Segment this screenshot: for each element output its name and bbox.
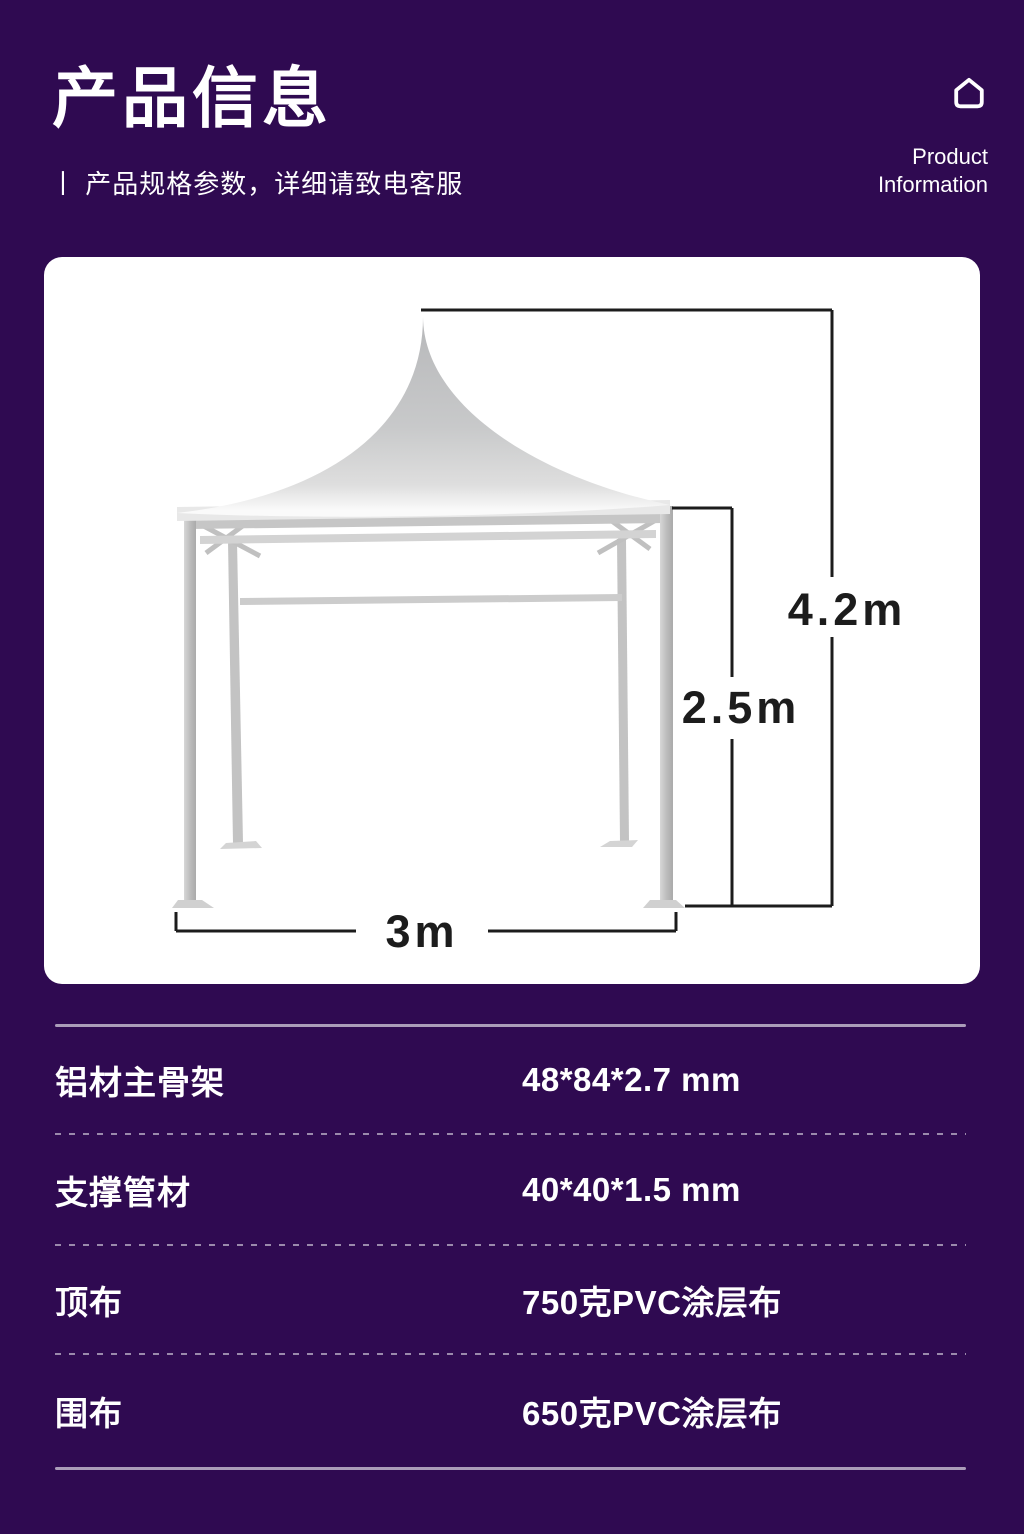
page-subtitle: 丨 产品规格参数，详细请致电客服 bbox=[50, 164, 463, 201]
dim-total-height-label: 4.2m bbox=[788, 584, 907, 635]
tent-rear-left-foot bbox=[220, 841, 262, 849]
home-icon bbox=[950, 76, 988, 112]
spec-value: 650克PVC涂层布 bbox=[522, 1387, 782, 1435]
spec-label: 顶布 bbox=[55, 1276, 522, 1324]
tent-front-right-leg bbox=[660, 506, 673, 900]
spec-table: 铝材主骨架 48*84*2.7 mm 支撑管材 40*40*1.5 mm 顶布 … bbox=[55, 1024, 966, 1470]
product-info-page: 产品信息 丨 产品规格参数，详细请致电客服 Product Informatio… bbox=[0, 0, 1024, 1534]
diagram-card: 4.2m 2.5m 3m bbox=[44, 257, 980, 984]
spec-value: 750克PVC涂层布 bbox=[522, 1276, 782, 1324]
spec-value: 48*84*2.7 mm bbox=[522, 1061, 741, 1099]
tent-roof bbox=[177, 317, 670, 517]
tent-front-beam-lower bbox=[200, 530, 656, 544]
spec-label: 铝材主骨架 bbox=[55, 1056, 522, 1104]
tent-rear-left-leg bbox=[228, 541, 243, 844]
spec-row-support-tube: 支撑管材 40*40*1.5 mm bbox=[55, 1135, 966, 1244]
tent-rear-right-foot bbox=[600, 840, 638, 847]
tent-rear-right-leg bbox=[617, 539, 629, 842]
corner-line-2: Information bbox=[878, 171, 988, 199]
corner-line-1: Product bbox=[878, 143, 988, 171]
tent-dimension-diagram: 4.2m 2.5m 3m bbox=[44, 257, 980, 984]
dimension-lines bbox=[176, 310, 832, 931]
spec-row-frame: 铝材主骨架 48*84*2.7 mm bbox=[55, 1027, 966, 1133]
spec-value: 40*40*1.5 mm bbox=[522, 1171, 741, 1209]
header-corner-text: Product Information bbox=[878, 143, 988, 199]
spec-row-side-fabric: 围布 650克PVC涂层布 bbox=[55, 1355, 966, 1467]
tent-front-left-foot bbox=[172, 900, 214, 908]
tent-rear-beam bbox=[240, 594, 622, 605]
dim-base-width-label: 3m bbox=[385, 906, 458, 957]
table-bottom-rule bbox=[55, 1467, 966, 1470]
spec-label: 支撑管材 bbox=[55, 1166, 522, 1214]
spec-label: 围布 bbox=[55, 1387, 522, 1435]
header-corner: Product Information bbox=[878, 76, 988, 199]
spec-row-roof-fabric: 顶布 750克PVC涂层布 bbox=[55, 1246, 966, 1353]
tent-structure bbox=[172, 317, 685, 908]
page-title: 产品信息 bbox=[52, 62, 332, 135]
tent-front-left-leg bbox=[184, 510, 196, 900]
tent-front-right-foot bbox=[643, 900, 685, 908]
dim-eave-height-label: 2.5m bbox=[682, 682, 801, 733]
